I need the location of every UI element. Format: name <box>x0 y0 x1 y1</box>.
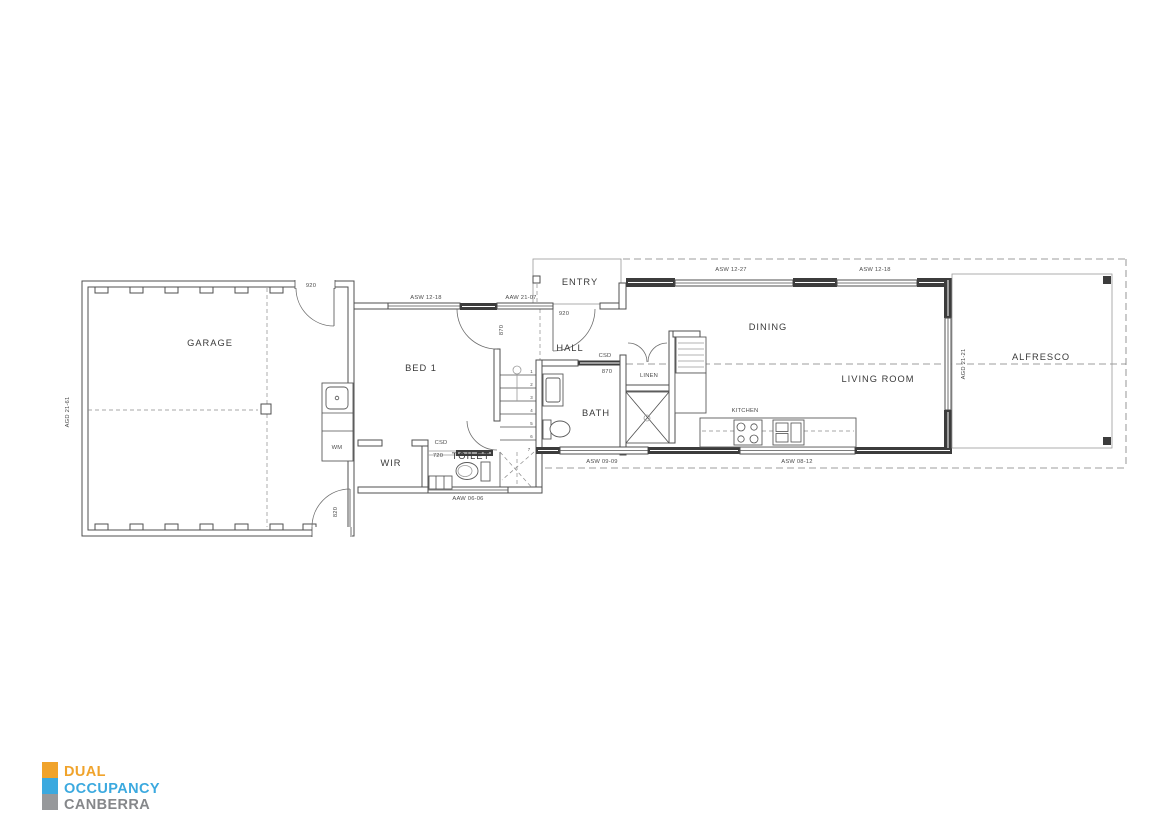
stair-newel <box>513 366 521 374</box>
bath-window-label: ASW 09-09 <box>586 459 617 465</box>
toilet-pan <box>456 462 490 481</box>
alfresco-label: ALFRESCO <box>1012 352 1070 362</box>
toilet-door-type-label: CSD <box>435 440 448 446</box>
laundry-tub <box>326 387 348 409</box>
hall-window-label: AAW 21-07 <box>505 295 536 301</box>
svg-text:5: 5 <box>530 421 533 426</box>
svg-text:3: 3 <box>530 395 533 400</box>
garage-label: GARAGE <box>187 338 233 348</box>
floor-plan-drawing: WM GARAGE AGD 21-61 920 820 ENTRY 920 8 <box>0 0 1165 831</box>
stair-walkline <box>467 421 497 450</box>
bath-label: BATH <box>582 408 610 418</box>
linen-label: LINEN <box>640 373 658 379</box>
logo-line1: DUAL <box>64 764 106 780</box>
alfresco-door-label: AGD 21-21 <box>961 349 967 380</box>
garage-door-left-label: AGD 21-61 <box>65 397 71 428</box>
logo-square-gray <box>42 794 58 810</box>
toilet-window-label: AAW 06-06 <box>452 496 483 502</box>
wm-label: WM <box>332 445 343 451</box>
garage: WM GARAGE AGD 21-61 920 820 <box>65 279 354 538</box>
stair-winder-dashes <box>500 452 534 491</box>
entry-door-label: 920 <box>559 311 569 317</box>
bath: CSD 870 BATH <box>536 353 626 455</box>
stair-tread-numbers: 1 2 3 4 5 6 7 <box>528 369 534 452</box>
bath-door-size-label: 870 <box>602 369 612 375</box>
brand-logo: DUAL OCCUPANCY CANBERRA <box>42 762 160 813</box>
logo-square-blue <box>42 778 58 794</box>
hall-label: HALL <box>556 343 583 353</box>
svg-text:7: 7 <box>528 447 531 452</box>
dining-label: DINING <box>749 322 788 332</box>
entry-label: ENTRY <box>562 277 598 287</box>
wir-label: WIR <box>380 458 401 468</box>
garage-entry-door-label: 920 <box>306 283 316 289</box>
kitchen-window-label: ASW 08-12 <box>781 459 812 465</box>
bath-door-type-label: CSD <box>599 353 612 359</box>
shower <box>626 392 669 443</box>
entry-porch: ENTRY <box>533 259 621 304</box>
toilet-label: TOILET <box>452 451 490 461</box>
kitchen-label: KITCHEN <box>732 408 759 414</box>
svg-text:6: 6 <box>530 434 533 439</box>
garage-inner-wall <box>88 287 348 530</box>
bed1-window-label: ASW 12-18 <box>410 295 441 301</box>
bath-vanity <box>543 374 563 406</box>
kitchen-bench <box>675 373 856 447</box>
alfresco-post-top <box>1103 276 1111 284</box>
logo-line3: CANBERRA <box>64 797 150 813</box>
svg-text:2: 2 <box>530 382 533 387</box>
dining-kitchen: LINEN <box>536 267 952 465</box>
bath-toilet-pan <box>543 420 570 439</box>
cooktop <box>734 420 762 445</box>
toilet-door-size-label: 720 <box>433 453 443 459</box>
stairs: 1 2 3 4 5 6 7 <box>467 366 542 493</box>
living-window-label: ASW 12-18 <box>859 267 890 273</box>
svg-text:1: 1 <box>530 369 533 374</box>
alfresco-post-bottom <box>1103 437 1111 445</box>
porch-post <box>533 276 540 283</box>
svg-text:4: 4 <box>530 408 533 413</box>
kitchen-sink <box>773 420 804 445</box>
floor-plan-document: WM GARAGE AGD 21-61 920 820 ENTRY 920 8 <box>0 0 1165 831</box>
logo-square-orange <box>42 762 58 778</box>
living-alfresco: AGD 21-21 LIVING ROOM ALFRESCO <box>842 274 1113 450</box>
living-label: LIVING ROOM <box>842 374 915 384</box>
garage-setout-marker <box>261 404 271 414</box>
wir-toilet: CSD 720 AAW 06-06 WIR TOILET <box>358 440 542 502</box>
bed1-door-label: 870 <box>499 325 505 335</box>
bed1-label: BED 1 <box>405 363 437 373</box>
garage-rear-door-label: 820 <box>333 507 339 517</box>
toilet-vanity <box>429 476 452 489</box>
logo-line2: OCCUPANCY <box>64 781 160 797</box>
dining-window-label: ASW 12-27 <box>715 267 746 273</box>
fridge-space <box>676 337 706 373</box>
bed1-door <box>457 309 500 421</box>
